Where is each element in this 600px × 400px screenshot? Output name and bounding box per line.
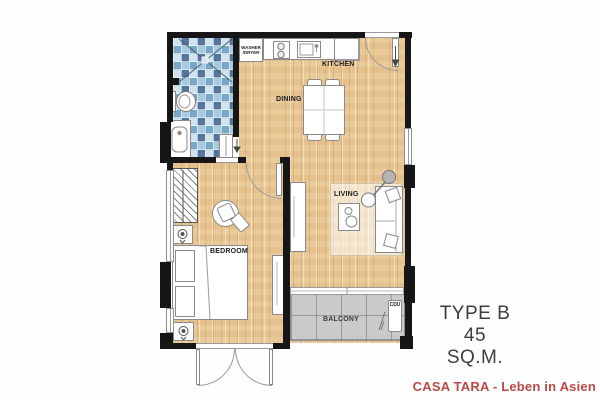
cdu-label: CDU — [389, 303, 401, 308]
dining-table — [303, 85, 345, 135]
kitchen-end-cabinet — [334, 38, 360, 61]
cdu-unit: CDU — [388, 300, 402, 332]
sofa — [375, 186, 403, 253]
wall — [238, 157, 246, 163]
nightstand — [172, 225, 193, 244]
wall — [167, 32, 365, 38]
balcony-label: BALCONY — [323, 316, 359, 324]
plan-title-block: TYPE B 45 SQ.M. — [436, 303, 514, 369]
floor-plan-image: WASHER /DRYER CDU — [0, 0, 600, 400]
french-door-arc-right — [235, 349, 272, 386]
bathroom-pocket-door — [219, 134, 233, 158]
coffee-table — [338, 203, 360, 231]
wall-pillar — [404, 165, 415, 188]
plan-type-title: TYPE B — [436, 303, 514, 325]
bathroom-vanity — [169, 120, 191, 161]
plan-area-text: 45 SQ.M. — [436, 325, 514, 369]
kitchen-label: KITCHEN — [322, 61, 355, 69]
wall-bedroom-living — [283, 157, 290, 344]
dining-label: DINING — [276, 96, 302, 104]
bedroom-door-panel — [276, 163, 282, 196]
wall-pillar — [160, 262, 171, 308]
window — [404, 128, 412, 165]
sliding-door — [290, 287, 404, 295]
wall — [167, 157, 216, 163]
wall — [405, 38, 411, 128]
french-door-panel — [196, 349, 200, 385]
watermark-text: CASA TARA - Leben in Asien — [413, 379, 596, 394]
washer-dryer-label: WASHER /DRYER — [240, 45, 262, 55]
french-door-arc-left — [198, 349, 235, 386]
wall-stub — [167, 78, 179, 85]
wall — [167, 343, 196, 349]
kitchen-sink — [297, 41, 321, 58]
wall-pillar — [404, 266, 415, 303]
wall-bathroom — [233, 38, 239, 137]
french-door-panel — [269, 349, 273, 385]
wall — [405, 188, 411, 266]
nightstand — [173, 322, 194, 341]
tv-console-living — [290, 182, 306, 252]
window — [166, 170, 174, 262]
living-label: LIVING — [334, 191, 359, 199]
bedroom-label: BEDROOM — [210, 248, 248, 256]
bed-pillow — [175, 286, 195, 317]
bathroom-door-gap — [233, 137, 239, 157]
washer-dryer-box: WASHER /DRYER — [239, 38, 263, 62]
entrance-door-panel — [392, 38, 399, 67]
window — [166, 308, 174, 333]
wall-pillar — [400, 336, 413, 349]
stove — [273, 41, 290, 59]
wall — [167, 163, 173, 170]
wall-balcony — [405, 303, 412, 337]
bed-pillow — [175, 250, 195, 282]
